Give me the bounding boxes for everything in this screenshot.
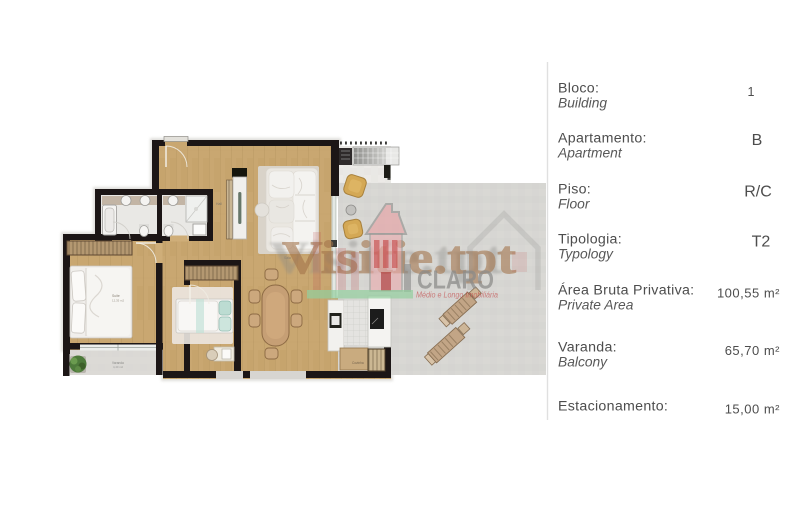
svg-text:Building: Building [558,96,607,111]
svg-text:Tipologia:: Tipologia: [558,232,622,248]
svg-text:100,55 m²: 100,55 m² [717,286,780,301]
svg-text:Hall: Hall [216,202,222,206]
svg-text:Typology: Typology [558,247,614,262]
svg-text:Balcony: Balcony [558,355,608,370]
svg-text:Médio e Longo Imobiliária: Médio e Longo Imobiliária [416,291,498,300]
svg-text:R/C: R/C [744,184,772,201]
svg-text:Suite: Suite [112,294,120,298]
svg-text:Floor: Floor [558,197,591,212]
svg-text:4,40 m2: 4,40 m2 [113,365,124,369]
svg-text:Área Bruta Privativa:: Área Bruta Privativa: [558,282,694,299]
svg-text:12,35 m2: 12,35 m2 [112,299,124,303]
svg-text:Apartment: Apartment [557,146,623,161]
svg-text:Cozinha: Cozinha [352,361,364,365]
svg-text:T2: T2 [752,234,771,251]
svg-text:65,70 m²: 65,70 m² [725,343,780,358]
svg-text:1: 1 [748,85,755,99]
svg-text:Estacionamento:: Estacionamento: [558,399,668,415]
svg-text:B: B [752,132,763,149]
svg-text:Bloco:: Bloco: [558,81,599,97]
svg-text:Piso:: Piso: [558,182,591,198]
svg-text:Varanda:: Varanda: [558,340,617,356]
svg-text:15,00 m²: 15,00 m² [725,402,780,417]
svg-text:Apartamento:: Apartamento: [558,131,647,147]
svg-text:Private Area: Private Area [558,298,634,313]
